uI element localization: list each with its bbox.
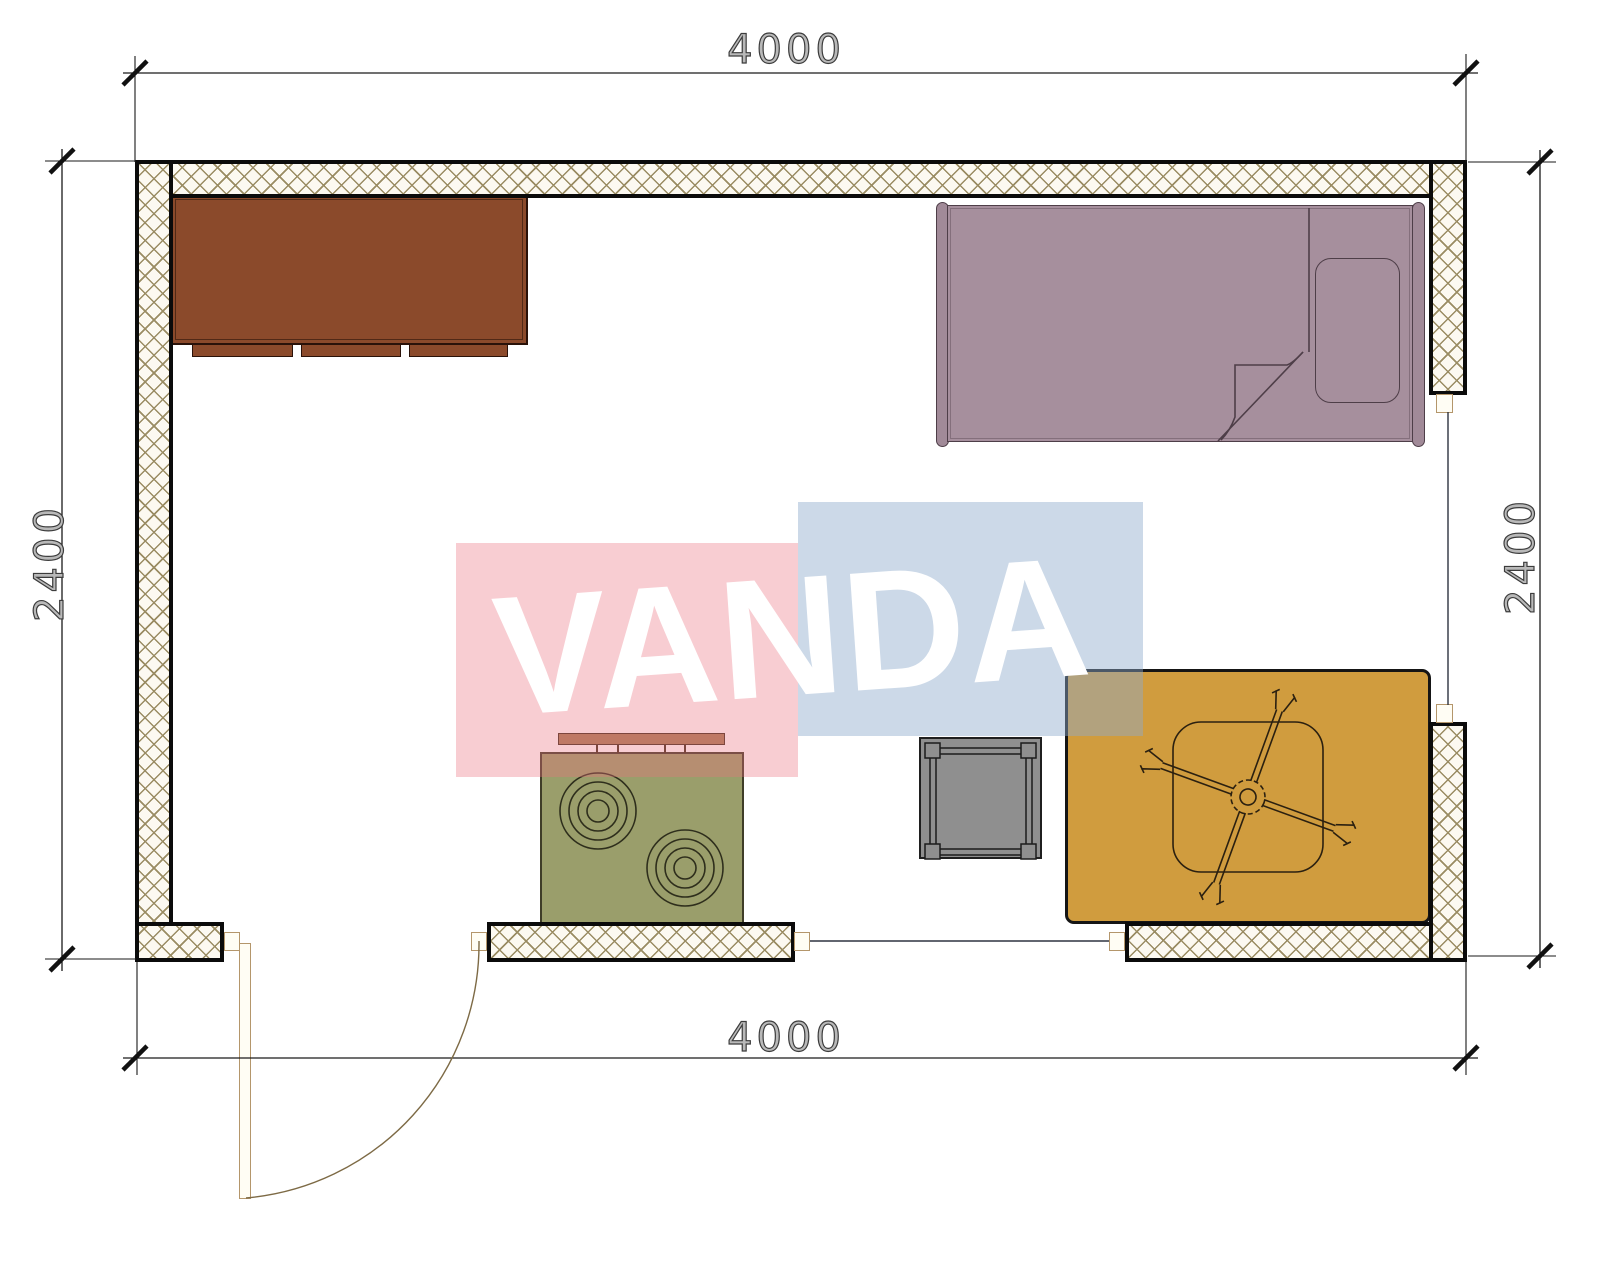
window-jamb-bottom-left: [794, 932, 810, 951]
window-jamb-bottom-right: [1109, 932, 1125, 951]
dimension-label-right: 2400: [1500, 466, 1542, 646]
dimension-label-top: 4000: [696, 29, 876, 71]
door-jamb-right: [471, 932, 487, 951]
wall-right-bottom: [1429, 722, 1467, 962]
wardrobe-top-view-icon: [170, 194, 528, 345]
door-swing-arc: [246, 941, 479, 1198]
square-side-table-top-view-icon: [919, 737, 1042, 859]
door-leaf-icon: [239, 943, 251, 1199]
bed-footboard-post: [1412, 202, 1425, 447]
wardrobe-drawer: [192, 344, 293, 357]
wall-right-top: [1429, 160, 1467, 395]
wall-bottom-center: [487, 922, 795, 962]
dimension-label-bottom: 4000: [696, 1017, 876, 1059]
wardrobe-drawer: [301, 344, 401, 357]
window-jamb-right-top: [1436, 394, 1453, 413]
wall-bottom-left-stub: [135, 922, 224, 962]
watermark-text: VANDA: [487, 531, 1097, 742]
pillow-icon: [1315, 258, 1400, 403]
wall-bottom-right: [1125, 922, 1467, 962]
floor-plan: VANDA 4000 400: [0, 0, 1600, 1280]
stove-two-burners-top-view-icon: [540, 752, 744, 924]
wardrobe-drawer: [409, 344, 508, 357]
wall-left: [135, 160, 173, 962]
wall-top: [135, 160, 1467, 198]
door-jamb-left: [224, 932, 240, 951]
dimension-label-left: 2400: [29, 473, 71, 653]
wardrobe-inner-line: [175, 199, 523, 340]
window-jamb-right-bottom: [1436, 704, 1453, 723]
